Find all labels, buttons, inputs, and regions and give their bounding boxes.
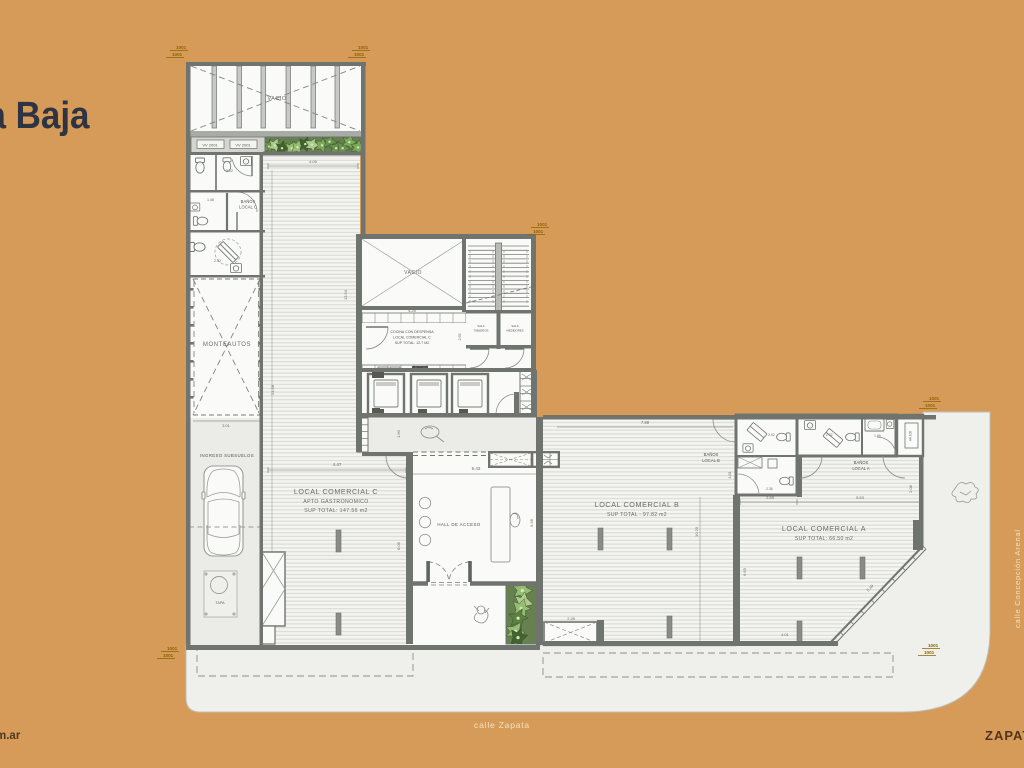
svg-text:2.08: 2.08 [908,484,913,493]
svg-text:VACIO: VACIO [404,270,422,276]
svg-text:LOCAL COMERCIAL C: LOCAL COMERCIAL C [294,487,378,496]
svg-text:MONTEAUTOS: MONTEAUTOS [203,342,251,348]
svg-text:1001: 1001 [533,229,544,234]
svg-text:13.54: 13.54 [343,289,348,300]
svg-text:1001: 1001 [928,643,939,648]
svg-text:LOCAL B: LOCAL B [702,458,720,463]
svg-text:TABLEROS: TABLEROS [474,329,489,333]
svg-text:BAÑOS: BAÑOS [854,460,869,465]
svg-text:HALL DE ACCESO: HALL DE ACCESO [437,522,480,527]
svg-text:3.01: 3.01 [222,423,231,428]
svg-text:2.36: 2.36 [766,487,773,491]
svg-text:SALA: SALA [511,324,518,328]
svg-text:2.42: 2.42 [214,259,221,263]
svg-text:2.02: 2.02 [768,433,775,437]
svg-text:4.47: 4.47 [333,462,342,467]
svg-text:4.06: 4.06 [309,159,318,164]
svg-text:1001: 1001 [172,52,183,57]
svg-text:5.43: 5.43 [472,466,481,471]
svg-text:SALA: SALA [477,324,484,328]
svg-text:2.65: 2.65 [458,334,462,341]
svg-text:1001: 1001 [163,653,174,658]
svg-text:1001: 1001 [176,45,187,50]
svg-text:SUP TOTAL: 147.56 m2: SUP TOTAL: 147.56 m2 [304,508,368,514]
svg-text:MEDIDORES: MEDIDORES [507,329,524,333]
svg-text:6.63: 6.63 [742,567,747,576]
svg-text:LOCAL COMERCIAL A: LOCAL COMERCIAL A [782,524,866,533]
svg-text:APTO GASTRONOMICO: APTO GASTRONOMICO [303,499,369,505]
svg-text:SUP TOTAL : 97.82 m2: SUP TOTAL : 97.82 m2 [607,512,667,518]
svg-text:2.02: 2.02 [826,433,833,437]
svg-text:SUP TOTAL: 66.50 m2: SUP TOTAL: 66.50 m2 [795,536,853,542]
svg-text:COCINA CON DESPENSA: COCINA CON DESPENSA [390,330,434,334]
svg-text:1001: 1001 [358,45,369,50]
svg-text:1001: 1001 [537,222,548,227]
svg-text:SUP TOTAL: 12.7 M2: SUP TOTAL: 12.7 M2 [395,341,430,345]
svg-text:BAÑOS: BAÑOS [704,452,719,457]
svg-text:AA 100: AA 100 [909,431,913,442]
svg-text:TAPA: TAPA [215,601,225,605]
svg-text:5.53: 5.53 [856,495,865,500]
svg-text:2.68: 2.68 [766,495,775,500]
svg-text:LOCAL COMERCIAL B: LOCAL COMERCIAL B [595,500,680,509]
svg-text:INGRESO SUBSUELOS: INGRESO SUBSUELOS [200,453,254,458]
svg-text:4.01: 4.01 [781,632,790,637]
svg-text:1.90: 1.90 [396,429,401,438]
svg-text:VV 2001: VV 2001 [202,143,218,148]
svg-text:2.28: 2.28 [567,617,574,621]
svg-text:21.58: 21.58 [270,384,275,395]
svg-text:LOCAL COMERCIAL C: LOCAL COMERCIAL C [393,336,431,340]
svg-text:3.02: 3.02 [226,169,233,173]
svg-text:VACIO: VACIO [267,96,286,102]
svg-text:1001: 1001 [929,396,940,401]
svg-text:7.88: 7.88 [641,420,650,425]
svg-text:1001: 1001 [167,646,178,651]
svg-text:VV 2001: VV 2001 [235,143,251,148]
svg-text:5.98: 5.98 [529,518,534,527]
svg-text:LOCAL A: LOCAL A [852,466,870,471]
svg-text:1001: 1001 [924,650,935,655]
svg-text:8.06: 8.06 [396,541,401,550]
svg-text:LOCAL C: LOCAL C [239,205,257,210]
svg-text:1001: 1001 [925,403,936,408]
svg-text:1.81: 1.81 [728,472,732,479]
svg-text:1.46: 1.46 [207,198,214,202]
svg-text:10.20: 10.20 [694,526,699,537]
svg-text:1001: 1001 [354,52,365,57]
